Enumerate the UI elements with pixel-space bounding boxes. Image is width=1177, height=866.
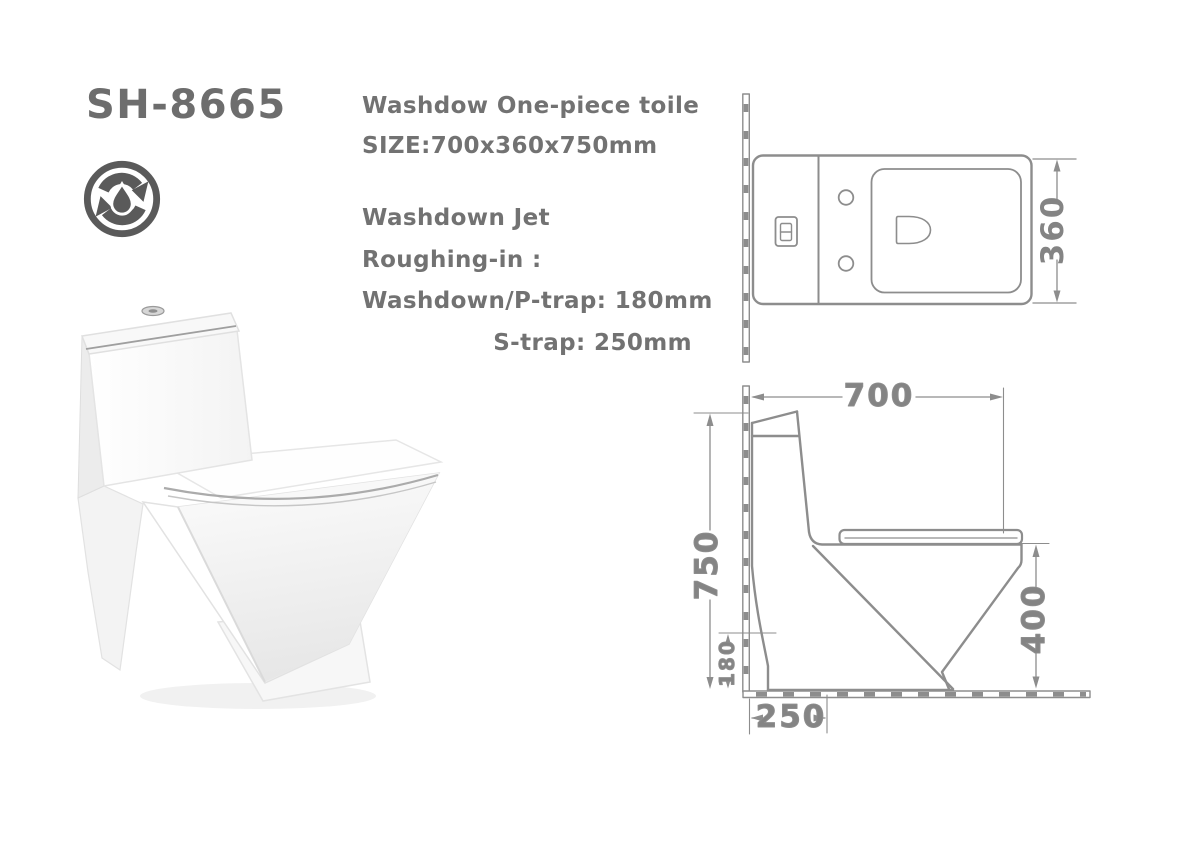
side-view-drawing: 700 750 180 bbox=[689, 378, 1090, 735]
top-view-flush-button bbox=[776, 217, 798, 246]
product-photo bbox=[58, 292, 448, 732]
dim-label-700: 700 bbox=[844, 378, 915, 414]
technical-drawings: 360 bbox=[675, 70, 1115, 770]
side-view-seat-slab bbox=[840, 530, 1023, 544]
top-view-bolt-hole-left bbox=[839, 190, 854, 205]
dim-label-360: 360 bbox=[1035, 195, 1071, 266]
tank-front-face bbox=[89, 330, 252, 486]
spec-roughing-label: Roughing-in : bbox=[362, 240, 692, 282]
spec-flush-type: Washdown Jet bbox=[362, 198, 692, 240]
product-title: Washdow One-piece toile bbox=[362, 86, 699, 126]
arrow-left-icon bbox=[751, 394, 764, 401]
top-view-seat-outline bbox=[872, 169, 1022, 293]
product-spec-sheet: { "sheet": { "model": "SH-8665", "descri… bbox=[0, 0, 1177, 866]
arrow-down-icon bbox=[1033, 677, 1040, 689]
model-number: SH-8665 bbox=[86, 82, 287, 128]
arrow-down-icon bbox=[1054, 291, 1061, 303]
toilet-left-column bbox=[78, 486, 143, 670]
top-view-body-outline bbox=[753, 156, 1032, 305]
top-view-wall-hatch bbox=[743, 94, 750, 362]
arrow-up-icon bbox=[707, 414, 714, 427]
top-view-water-outlet bbox=[897, 217, 931, 244]
side-view-wall-hatch bbox=[743, 386, 750, 692]
side-view-toilet-profile bbox=[752, 412, 1022, 691]
side-view-floor-hatch bbox=[743, 691, 1090, 698]
product-size: SIZE:700x360x750mm bbox=[362, 126, 699, 166]
arrow-right-icon bbox=[990, 394, 1003, 401]
dim-label-400: 400 bbox=[1016, 584, 1052, 655]
flush-button-center bbox=[149, 309, 158, 313]
arrow-down-icon bbox=[707, 677, 714, 689]
dim-label-250: 250 bbox=[756, 699, 827, 735]
description-header: Washdow One-piece toile SIZE:700x360x750… bbox=[362, 86, 699, 166]
dim-label-750: 750 bbox=[689, 530, 725, 601]
water-saving-icon bbox=[81, 158, 163, 240]
arrow-up-icon bbox=[1033, 545, 1040, 558]
icon-water-drop bbox=[112, 184, 133, 214]
dim-label-180: 180 bbox=[715, 639, 739, 687]
top-view-bolt-hole-right bbox=[839, 256, 854, 271]
arrow-up-icon bbox=[1054, 160, 1061, 172]
top-view-drawing: 360 bbox=[743, 94, 1076, 362]
